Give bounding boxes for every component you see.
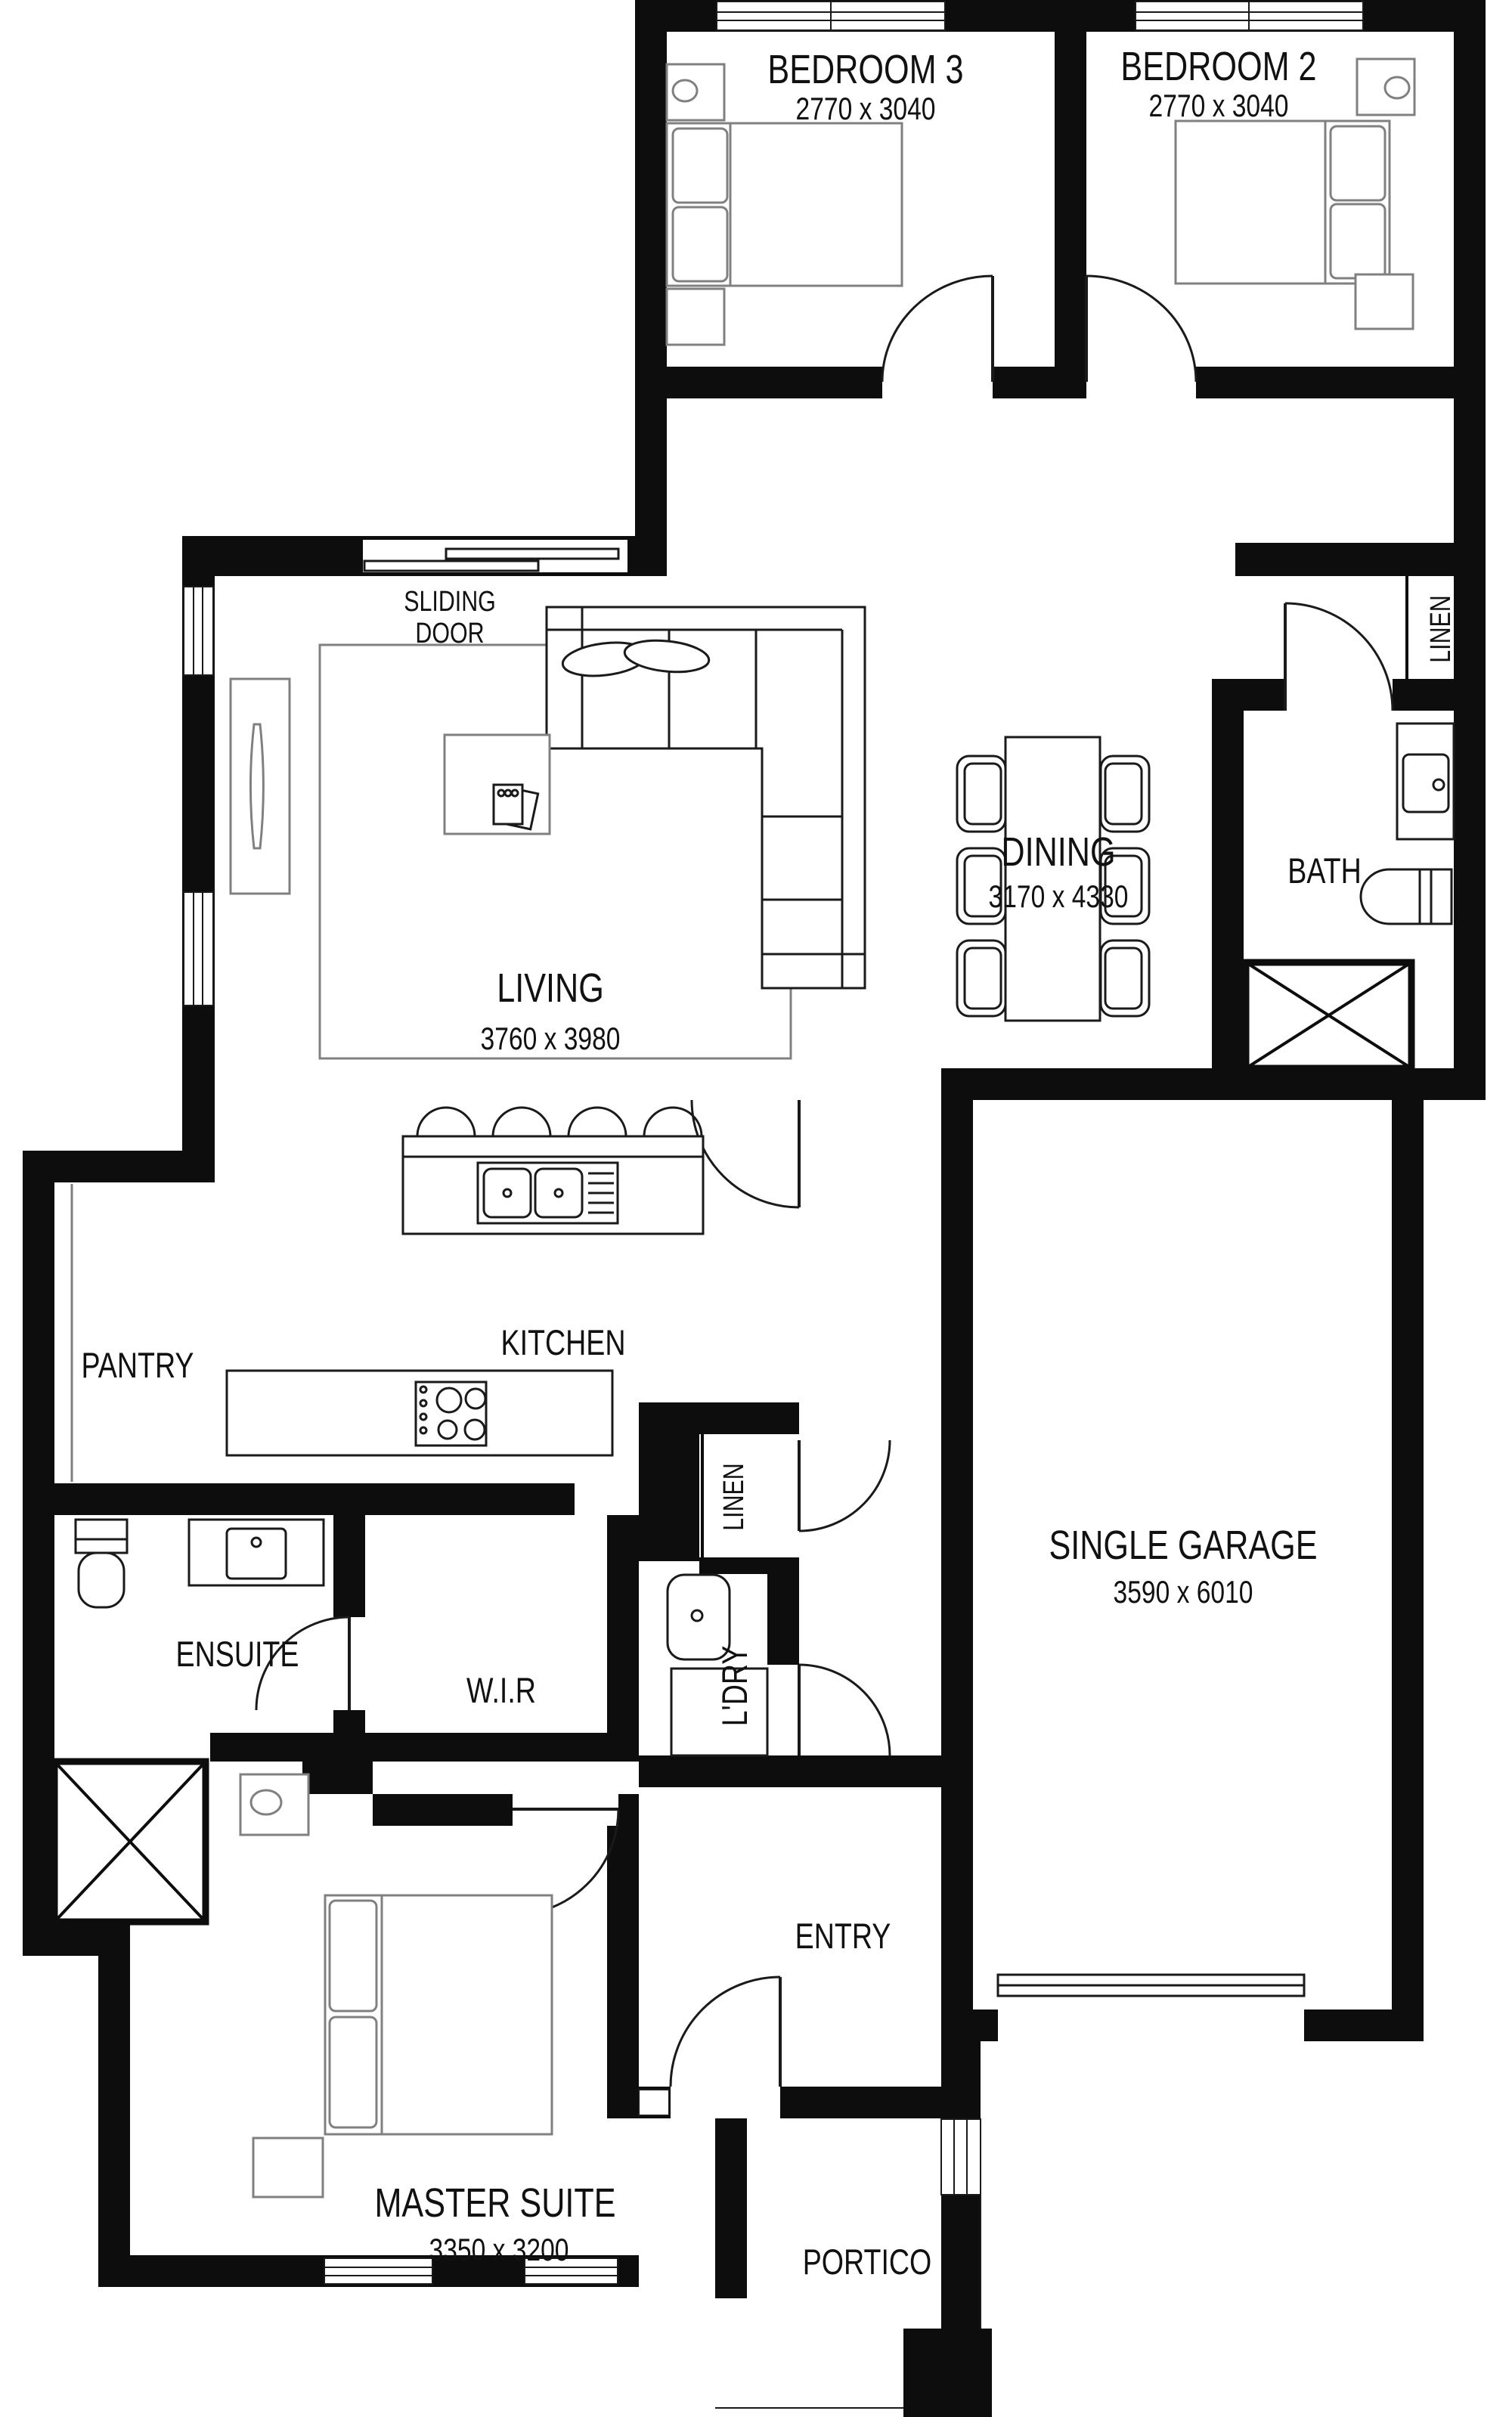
wall [635, 367, 882, 398]
wall [618, 1794, 639, 1826]
room-dims-bedroom2: 2770 x 3040 [1149, 89, 1289, 124]
wall-bath-left [1212, 679, 1244, 1068]
pillow [330, 2017, 376, 2127]
bedside-table [253, 2138, 323, 2197]
island-bench [403, 1108, 703, 1234]
wall [993, 367, 1086, 398]
wall [1304, 2010, 1424, 2041]
garage-portico [715, 1975, 1304, 2417]
wall [23, 1151, 54, 1956]
portico-pillar [903, 2329, 992, 2417]
floor-plan-page: BEDROOM 3 2770 x 3040 BEDROOM 2 2770 x 3… [0, 0, 1512, 2417]
wall [1424, 1068, 1486, 1100]
room-label-garage: SINGLE GARAGE [1049, 1523, 1317, 1569]
wall [715, 2118, 747, 2298]
cooktop [416, 1382, 486, 1446]
room-dims-dining: 3170 x 4330 [989, 880, 1129, 915]
room-label-entry: ENTRY [795, 1917, 891, 1957]
window-master-left [324, 2258, 432, 2284]
wall [699, 1557, 767, 1574]
wall [23, 1483, 575, 1515]
room-label-laundry: L'DRY [715, 1646, 755, 1727]
tv-unit [231, 679, 290, 894]
coffee-table [445, 735, 550, 834]
wall [635, 0, 667, 576]
closet-label-linen-bath: LINEN [1425, 595, 1457, 663]
room-dims-garage: 3590 x 6010 [1114, 1576, 1253, 1610]
wall [1244, 679, 1285, 711]
wall [767, 1557, 799, 1665]
shower [54, 1762, 206, 1922]
pillow [1331, 204, 1385, 278]
wall [607, 1826, 639, 2087]
wall [373, 1794, 513, 1826]
kitchen-bench [227, 1371, 612, 1455]
bedside-table [667, 289, 724, 345]
toilet [76, 1520, 127, 1607]
door-linen-hall [799, 1440, 890, 1531]
sliding-door-label-2: DOOR [415, 618, 484, 649]
ensuite-fixtures [54, 1520, 324, 1922]
bedside-table [1356, 274, 1413, 329]
room-label-kitchen: KITCHEN [501, 1323, 626, 1363]
window-portico-side [941, 2119, 981, 2195]
wall [98, 1924, 130, 2287]
stool [417, 1108, 475, 1136]
sliding-door [363, 536, 629, 576]
wall-garage-top [941, 1068, 1424, 1100]
wall [627, 536, 667, 576]
pillow [330, 1901, 376, 2011]
garage-door [998, 1975, 1304, 1996]
window-living-upper [184, 587, 213, 675]
stool [569, 1108, 626, 1136]
bathtub [1361, 869, 1452, 924]
wall [333, 1710, 365, 1733]
room-label-bedroom3: BEDROOM 3 [767, 48, 963, 93]
door-laundry [799, 1665, 890, 1755]
window-bedroom2 [1136, 2, 1363, 30]
room-label-living: LIVING [497, 966, 604, 1012]
wall [639, 1755, 950, 1787]
sliding-door-label-1: SLIDING [404, 586, 496, 618]
wall-garage-right [1392, 1068, 1424, 2041]
wall [699, 1402, 799, 1434]
master-furniture [240, 1774, 552, 2197]
wall [302, 1762, 373, 1794]
wall-bedroom-divider [1055, 32, 1086, 398]
wall [639, 1402, 699, 1561]
stool [493, 1108, 550, 1136]
sofa [547, 607, 865, 988]
bath-fixtures [1246, 576, 1454, 1068]
bedside-table [667, 64, 724, 120]
vanity [1397, 724, 1454, 839]
room-label-master: MASTER SUITE [374, 2181, 615, 2226]
closet-label-linen-hall: LINEN [718, 1463, 750, 1531]
wall-garage-left [941, 1100, 973, 2010]
room-label-dining: DINING [1001, 830, 1115, 875]
room-label-ensuite: ENSUITE [176, 1635, 299, 1675]
door-bedroom3 [882, 276, 993, 382]
wall [333, 1515, 365, 1617]
wall [780, 2087, 941, 2118]
pillow [673, 207, 727, 281]
room-label-bedroom2: BEDROOM 2 [1120, 45, 1316, 90]
wall-bath-top [1235, 543, 1486, 576]
wall [210, 1733, 639, 1762]
wall [1393, 679, 1454, 711]
pillow [1331, 126, 1385, 200]
dining-furniture [957, 737, 1149, 1021]
room-dims-master: 3350 x 3200 [429, 2233, 569, 2268]
room-label-bath: BATH [1287, 851, 1361, 891]
room-label-wir: W.I.R [466, 1671, 536, 1711]
window-bedroom3 [717, 2, 945, 30]
door-bath [1285, 603, 1393, 711]
wall [1196, 367, 1486, 398]
door-entry-front [639, 1977, 780, 2115]
wall [941, 2010, 998, 2041]
room-label-pantry: PANTRY [82, 1346, 194, 1386]
room-dims-bedroom3: 2770 x 3040 [796, 92, 936, 127]
door-bedroom2 [1086, 276, 1196, 382]
walls [23, 0, 1486, 2417]
double-sink [478, 1163, 618, 1223]
floor-plan-drawing: BEDROOM 3 2770 x 3040 BEDROOM 2 2770 x 3… [0, 0, 1512, 2417]
room-dims-living: 3760 x 3980 [481, 1022, 621, 1057]
pillow [673, 129, 727, 203]
window-living-lower [184, 892, 213, 1006]
dining-table [1005, 737, 1100, 1021]
door-kitchen-hall [692, 1100, 799, 1207]
ensuite-vanity [189, 1520, 324, 1585]
wall [607, 1515, 639, 1733]
room-label-portico: PORTICO [803, 2242, 932, 2282]
hot-water-unit [1246, 962, 1411, 1068]
